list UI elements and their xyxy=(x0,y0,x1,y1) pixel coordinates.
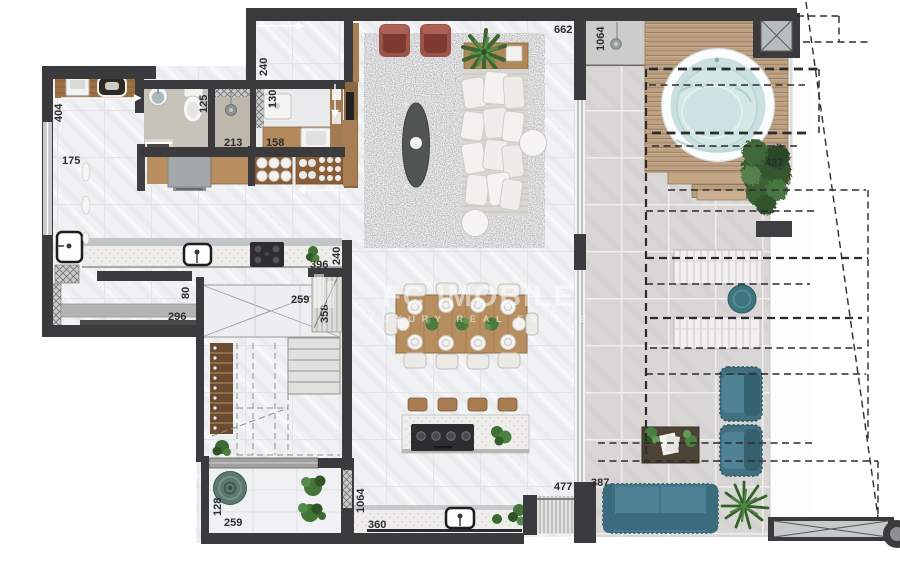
svg-text:1064: 1064 xyxy=(595,26,607,51)
svg-text:387: 387 xyxy=(591,477,609,489)
svg-text:158: 158 xyxy=(266,137,284,149)
svg-text:360: 360 xyxy=(368,519,386,531)
svg-text:240: 240 xyxy=(258,58,270,76)
svg-text:128: 128 xyxy=(212,498,224,516)
svg-text:80: 80 xyxy=(180,287,192,299)
svg-text:FC IMOBILE: FC IMOBILE xyxy=(382,280,575,313)
svg-text:1064: 1064 xyxy=(355,488,367,513)
svg-text:259: 259 xyxy=(224,517,242,529)
svg-text:125: 125 xyxy=(198,95,210,113)
svg-text:175: 175 xyxy=(62,155,80,167)
svg-text:477: 477 xyxy=(554,481,572,493)
svg-text:662: 662 xyxy=(554,24,572,36)
svg-text:130: 130 xyxy=(267,90,279,108)
svg-text:240: 240 xyxy=(331,247,343,265)
svg-text:404: 404 xyxy=(53,103,65,122)
svg-text:213: 213 xyxy=(224,137,242,149)
svg-text:427: 427 xyxy=(765,157,783,169)
svg-text:LUXURY REAL ESTATE: LUXURY REAL ESTATE xyxy=(370,314,593,325)
svg-text:396: 396 xyxy=(310,259,328,271)
svg-text:296: 296 xyxy=(168,311,186,323)
svg-text:259: 259 xyxy=(291,294,309,306)
